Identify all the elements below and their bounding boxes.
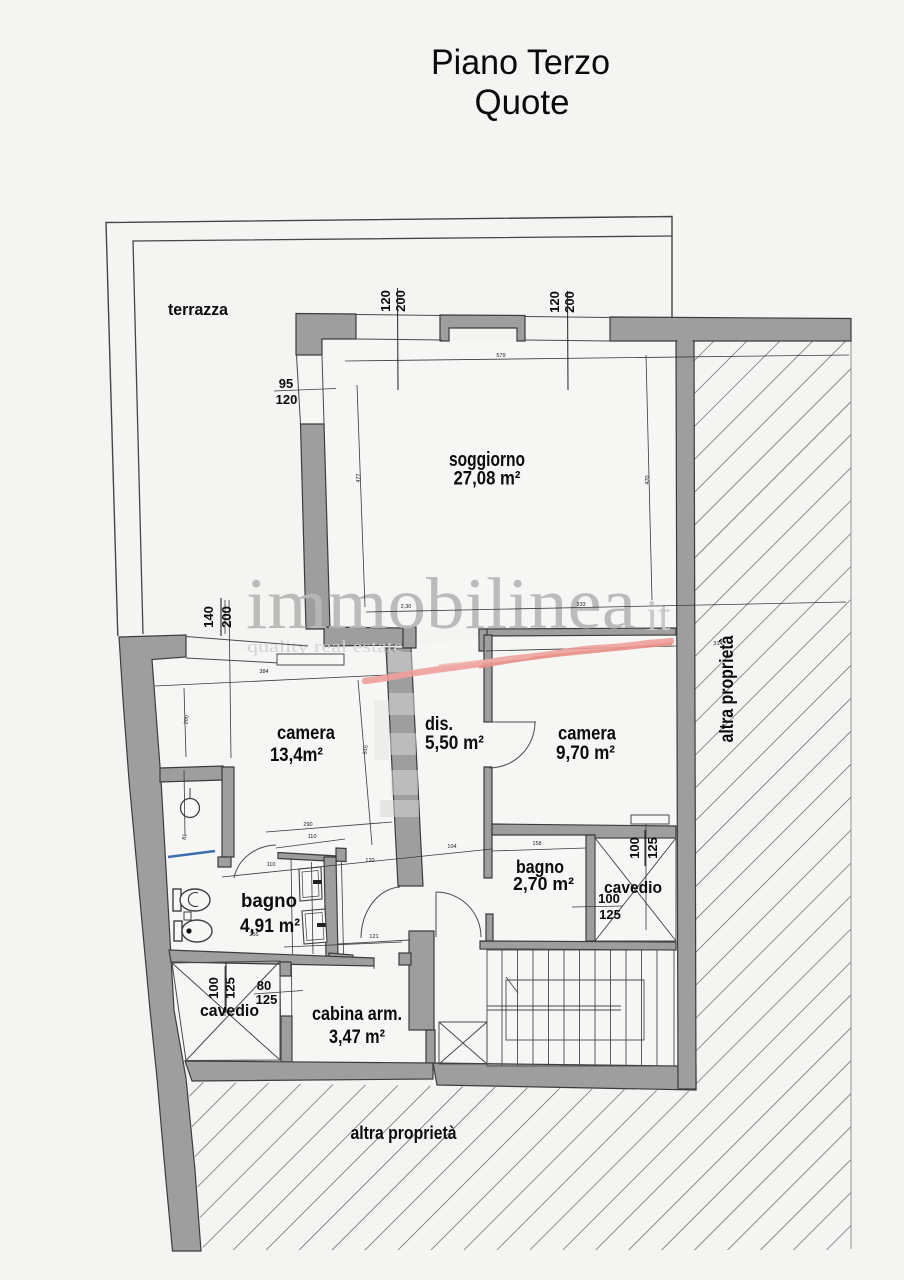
svg-text:3,47 m²: 3,47 m² [329,1027,385,1048]
svg-text:bagno: bagno [241,891,297,912]
svg-text:80: 80 [257,978,271,993]
svg-text:Piano Terzo: Piano Terzo [431,43,610,82]
svg-text:200: 200 [393,290,408,312]
svg-text:9,70 m²: 9,70 m² [556,743,615,764]
svg-text:140: 140 [201,606,216,628]
svg-text:dis.: dis. [425,714,453,735]
svg-text:2,30: 2,30 [401,604,412,610]
svg-text:quality real estate: quality real estate [247,637,403,656]
svg-text:120: 120 [547,291,562,313]
svg-text:2,70 m²: 2,70 m² [513,874,574,894]
svg-text:125: 125 [645,837,660,859]
svg-text:altra proprietà: altra proprietà [351,1123,458,1143]
svg-text:120: 120 [378,290,393,312]
svg-text:110: 110 [308,834,317,840]
svg-text:4,91 m²: 4,91 m² [240,916,300,937]
svg-text:110: 110 [267,862,276,868]
svg-text:158: 158 [532,841,541,847]
svg-text:81: 81 [182,833,189,840]
svg-text:125: 125 [599,907,621,922]
svg-text:100: 100 [206,977,221,999]
svg-text:470: 470 [645,475,651,484]
svg-text:altra proprietà: altra proprietà [717,635,738,742]
svg-text:13,4m²: 13,4m² [270,745,323,766]
svg-text:camera: camera [277,723,335,744]
svg-text:200: 200 [183,715,190,725]
svg-text:100: 100 [627,837,642,859]
svg-text:camera: camera [558,724,616,745]
svg-text:200: 200 [562,291,577,313]
svg-text:120: 120 [276,392,298,407]
svg-text:Quote: Quote [475,83,570,122]
svg-text:cavedio: cavedio [200,1001,259,1020]
svg-text:cavedio: cavedio [604,878,662,897]
svg-text:477: 477 [356,473,362,482]
svg-text:384: 384 [259,669,268,675]
svg-text:290: 290 [303,822,312,828]
svg-text:cabina arm.: cabina arm. [312,1004,402,1025]
svg-text:125: 125 [223,977,238,999]
svg-text:121: 121 [369,934,378,940]
svg-text:104: 104 [447,844,456,850]
svg-text:5,50 m²: 5,50 m² [425,733,484,754]
svg-text:terrazza: terrazza [168,300,229,319]
svg-text:27,08 m²: 27,08 m² [454,469,521,490]
svg-text:120: 120 [365,858,374,864]
svg-text:it: it [646,591,670,640]
svg-text:333: 333 [576,602,585,608]
svg-text:315: 315 [362,745,369,755]
svg-text:95: 95 [279,376,293,391]
